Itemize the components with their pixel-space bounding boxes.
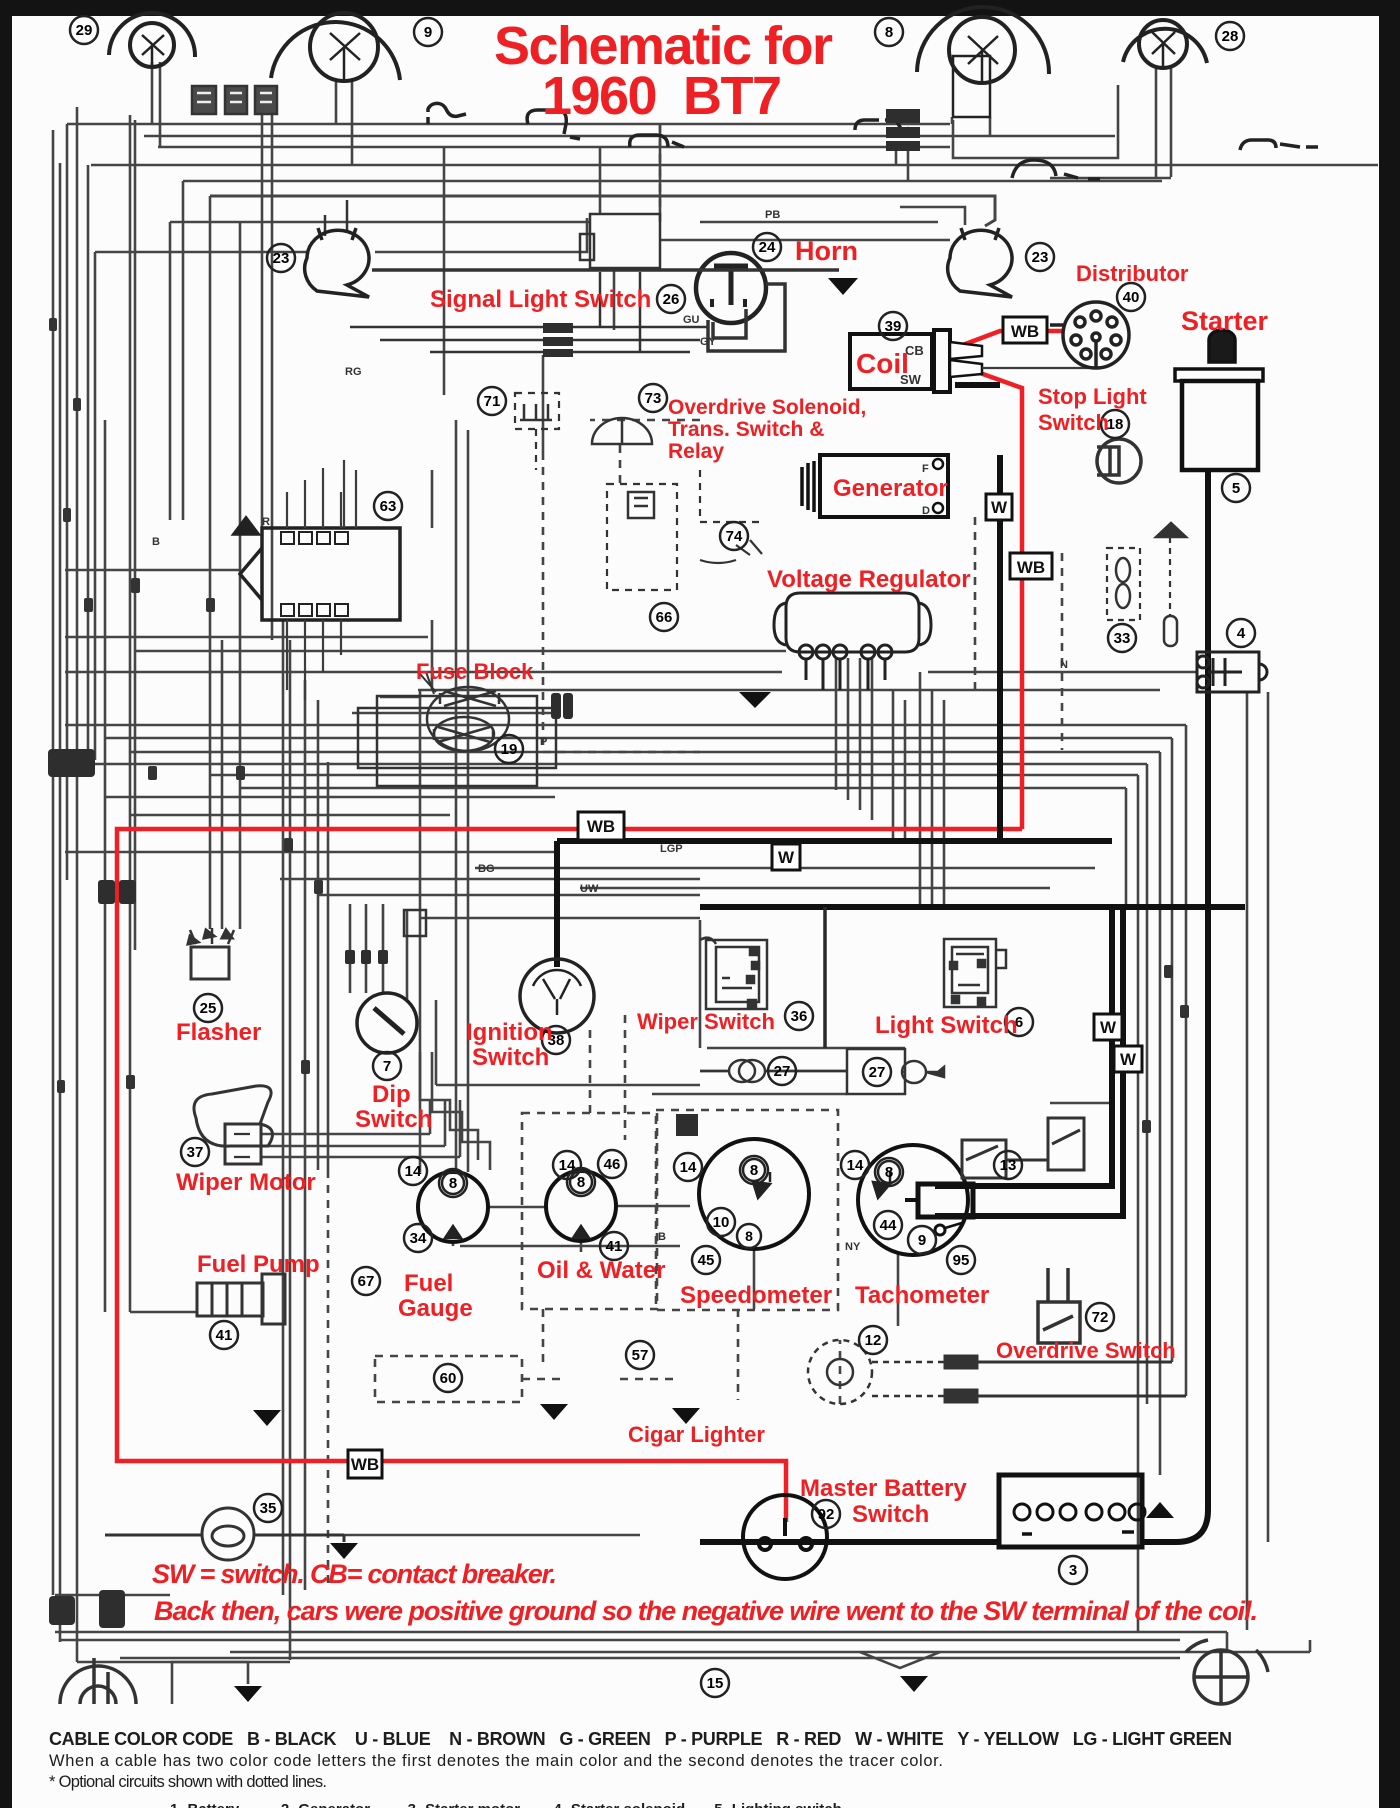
svg-text:28: 28 xyxy=(1222,28,1239,45)
svg-text:R: R xyxy=(262,516,270,528)
svg-text:8: 8 xyxy=(745,1228,753,1244)
svg-text:BG: BG xyxy=(478,863,495,875)
svg-text:71: 71 xyxy=(484,393,501,410)
svg-text:W: W xyxy=(1100,1018,1117,1037)
svg-text:Relay: Relay xyxy=(668,440,724,463)
svg-text:Back then, cars were positive: Back then, cars were positive ground so … xyxy=(154,1596,1258,1626)
svg-text:35: 35 xyxy=(260,1500,277,1517)
svg-text:Flasher: Flasher xyxy=(176,1019,261,1046)
svg-text:12: 12 xyxy=(865,1332,882,1349)
svg-text:Ignition: Ignition xyxy=(466,1019,553,1046)
svg-text:95: 95 xyxy=(953,1252,970,1269)
svg-text:GY: GY xyxy=(700,336,717,348)
svg-text:27: 27 xyxy=(869,1064,886,1081)
svg-text:W: W xyxy=(1120,1050,1137,1069)
svg-text:9: 9 xyxy=(424,24,432,41)
svg-text:29: 29 xyxy=(76,22,93,39)
svg-text:D: D xyxy=(922,505,930,517)
svg-text:41: 41 xyxy=(606,1238,623,1255)
svg-text:PB: PB xyxy=(765,209,780,221)
svg-text:8: 8 xyxy=(885,1164,893,1181)
svg-text:When a cable has two color cod: When a cable has two color code letters … xyxy=(49,1752,943,1770)
svg-text:NY: NY xyxy=(845,1241,861,1253)
svg-text:Switch: Switch xyxy=(1038,410,1109,435)
svg-text:Overdrive Solenoid,: Overdrive Solenoid, xyxy=(668,396,866,419)
svg-text:67: 67 xyxy=(358,1273,375,1290)
svg-text:4: 4 xyxy=(1237,625,1246,642)
svg-text:15: 15 xyxy=(707,1675,724,1692)
svg-text:CABLE COLOR CODE B - BLACK: CABLE COLOR CODE B - BLACK U - BLUE N - … xyxy=(49,1729,1232,1749)
svg-text:27: 27 xyxy=(774,1063,791,1080)
svg-text:Gauge: Gauge xyxy=(398,1295,473,1322)
svg-text:Distributor: Distributor xyxy=(1076,261,1189,286)
svg-text:14: 14 xyxy=(847,1157,864,1174)
svg-text:W: W xyxy=(991,498,1008,517)
svg-text:Voltage Regulator: Voltage Regulator xyxy=(767,566,971,593)
svg-text:Stop Light: Stop Light xyxy=(1038,384,1147,409)
svg-text:SW = switch. CB= contact break: SW = switch. CB= contact breaker. xyxy=(152,1559,557,1589)
svg-text:WB: WB xyxy=(351,1455,379,1474)
svg-text:33: 33 xyxy=(1114,630,1131,647)
svg-text:F: F xyxy=(922,463,929,475)
svg-text:1- Battery 2- Generat: 1- Battery 2- Generator 3- Starter motor… xyxy=(170,1801,842,1808)
svg-text:40: 40 xyxy=(1123,289,1140,306)
svg-text:Fuel: Fuel xyxy=(404,1270,453,1297)
svg-text:Switch: Switch xyxy=(852,1501,929,1528)
svg-text:10: 10 xyxy=(713,1214,730,1231)
svg-text:57: 57 xyxy=(632,1347,649,1364)
svg-text:Wiper Motor: Wiper Motor xyxy=(176,1169,316,1196)
svg-text:UW: UW xyxy=(580,883,599,895)
svg-text:Starter: Starter xyxy=(1181,306,1269,336)
svg-text:92: 92 xyxy=(818,1506,835,1523)
svg-text:36: 36 xyxy=(791,1008,808,1025)
svg-text:WB: WB xyxy=(1011,322,1039,341)
svg-text:13: 13 xyxy=(1000,1157,1017,1174)
svg-text:Tachometer: Tachometer xyxy=(855,1282,989,1309)
svg-text:1960 BT7: 1960 BT7 xyxy=(542,66,782,126)
svg-text:8: 8 xyxy=(885,24,893,41)
svg-text:41: 41 xyxy=(216,1327,233,1344)
svg-text:46: 46 xyxy=(604,1156,621,1173)
svg-text:25: 25 xyxy=(200,1000,217,1017)
svg-text:3: 3 xyxy=(1069,1562,1077,1579)
svg-text:WB: WB xyxy=(587,817,615,836)
svg-text:14: 14 xyxy=(680,1159,697,1176)
svg-text:Oil & Water: Oil & Water xyxy=(537,1257,665,1284)
svg-text:RG: RG xyxy=(345,366,362,378)
svg-text:8: 8 xyxy=(449,1175,457,1192)
svg-text:5: 5 xyxy=(1232,480,1240,497)
svg-text:N: N xyxy=(1060,659,1068,671)
svg-text:23: 23 xyxy=(273,250,290,267)
svg-text:7: 7 xyxy=(383,1058,391,1075)
svg-text:GU: GU xyxy=(683,314,700,326)
svg-text:44: 44 xyxy=(880,1217,897,1234)
svg-text:P: P xyxy=(540,736,547,748)
svg-text:24: 24 xyxy=(759,239,776,256)
svg-text:8: 8 xyxy=(750,1162,758,1179)
svg-text:Horn: Horn xyxy=(795,236,858,266)
svg-text:60: 60 xyxy=(440,1370,457,1387)
svg-text:B: B xyxy=(152,536,160,548)
svg-text:19: 19 xyxy=(501,741,518,758)
svg-text:74: 74 xyxy=(726,528,743,545)
svg-text:Switch: Switch xyxy=(355,1106,432,1133)
svg-text:LGP: LGP xyxy=(660,843,683,855)
svg-text:73: 73 xyxy=(645,390,662,407)
svg-text:Signal Light Switch: Signal Light Switch xyxy=(430,286,651,313)
svg-text:8: 8 xyxy=(577,1174,585,1191)
svg-text:34: 34 xyxy=(410,1230,427,1247)
svg-text:WB: WB xyxy=(1017,558,1045,577)
svg-text:39: 39 xyxy=(885,318,902,335)
svg-text:63: 63 xyxy=(380,498,397,515)
svg-text:Master Battery: Master Battery xyxy=(800,1475,967,1502)
svg-text:Fuel Pump: Fuel Pump xyxy=(197,1251,320,1278)
svg-text:Speedometer: Speedometer xyxy=(680,1282,832,1309)
svg-text:Generator: Generator xyxy=(833,475,948,502)
svg-text:Dip: Dip xyxy=(372,1081,411,1108)
svg-text:Switch: Switch xyxy=(472,1044,549,1071)
svg-text:Fuse Block: Fuse Block xyxy=(416,659,534,684)
svg-text:Light Switch: Light Switch xyxy=(875,1012,1018,1039)
svg-text:14: 14 xyxy=(405,1163,422,1180)
svg-text:37: 37 xyxy=(187,1144,204,1161)
svg-text:Wiper Switch: Wiper Switch xyxy=(637,1009,775,1034)
svg-text:W: W xyxy=(778,848,795,867)
svg-text:66: 66 xyxy=(656,609,673,626)
svg-text:B: B xyxy=(658,1231,666,1243)
svg-text:72: 72 xyxy=(1092,1309,1109,1326)
svg-text:Coil: Coil xyxy=(856,348,909,379)
svg-text:* Optional circuits shown with: * Optional circuits shown with dotted li… xyxy=(49,1773,327,1791)
svg-text:45: 45 xyxy=(698,1252,715,1269)
svg-text:Cigar Lighter: Cigar Lighter xyxy=(628,1422,765,1447)
svg-text:Overdrive Switch: Overdrive Switch xyxy=(996,1338,1176,1363)
svg-text:23: 23 xyxy=(1032,249,1049,266)
svg-text:26: 26 xyxy=(663,291,680,308)
svg-text:18: 18 xyxy=(1107,416,1124,433)
svg-text:9: 9 xyxy=(918,1232,926,1249)
svg-text:Trans. Switch &: Trans. Switch & xyxy=(668,418,824,441)
